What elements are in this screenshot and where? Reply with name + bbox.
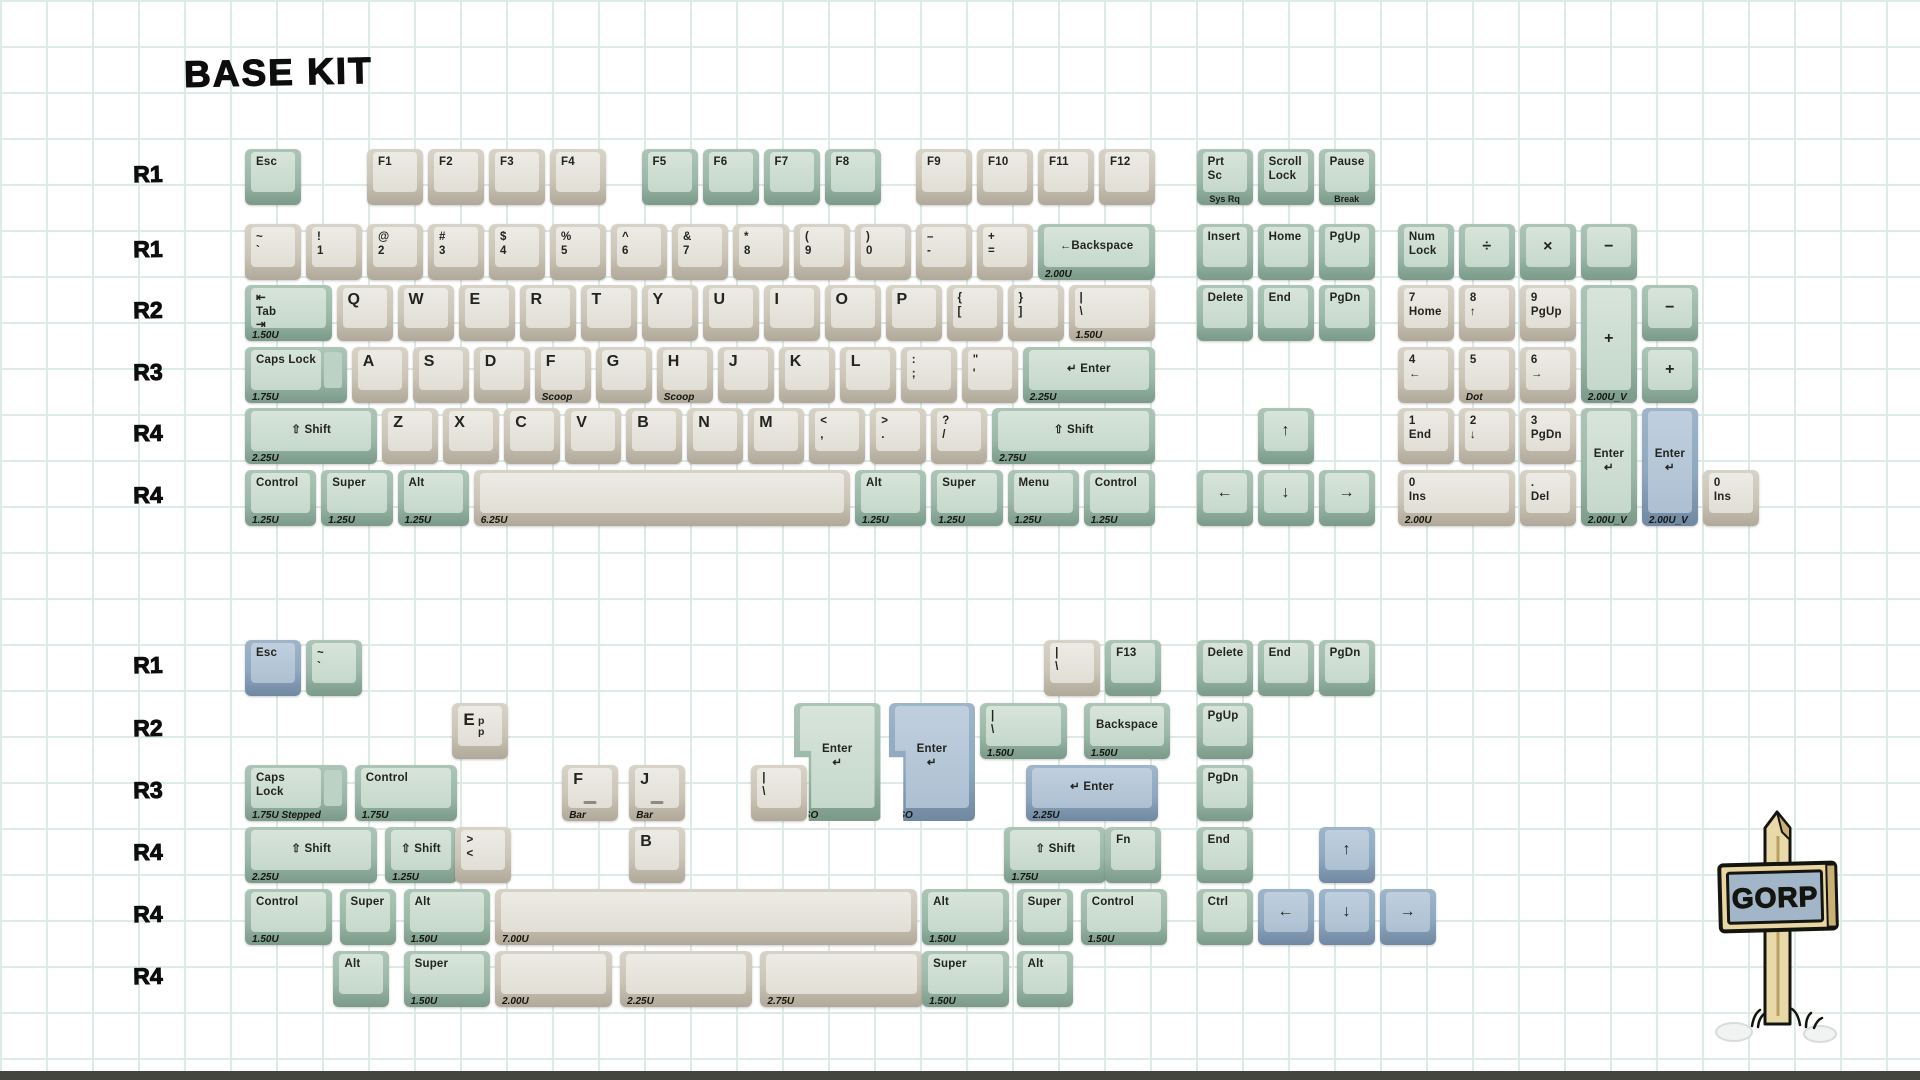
key-i: I: [764, 285, 820, 341]
row-label-bottom-r3-2: R3: [118, 776, 178, 804]
size-label: 1.50U: [411, 934, 438, 945]
row-label-top-r3-3: R3: [118, 358, 178, 386]
row-label-bottom-r2-1: R2: [118, 714, 178, 742]
key-2-2: @2: [367, 224, 423, 280]
size-label: 2.00U_V: [1588, 392, 1627, 403]
key-plus: +: [1642, 347, 1698, 403]
key-f3: F3: [489, 149, 545, 205]
key-semicolon: :;: [901, 347, 957, 403]
key-caps-lock: CapsLock1.75U Stepped: [245, 765, 347, 821]
size-label: 2.00U: [502, 996, 529, 1007]
key-p: P: [886, 285, 942, 341]
key-plus: +2.00U_V: [1581, 285, 1637, 403]
size-label: 2.75U: [767, 996, 794, 1007]
size-label: Dot: [1466, 392, 1483, 403]
key-w: W: [398, 285, 454, 341]
row-label-bottom-r1-0: R1: [118, 651, 178, 679]
key-slash: ?/: [931, 408, 987, 464]
key-7-7: &7: [672, 224, 728, 280]
size-label: 1.25U: [1015, 515, 1042, 526]
row-label-top-r2-2: R2: [118, 296, 178, 324]
size-label: 1.25U: [405, 515, 432, 526]
key-enter: Enter↵ISO: [889, 703, 976, 821]
key-g: G: [596, 347, 652, 403]
size-label: Scoop: [664, 392, 695, 403]
key-x: X: [443, 408, 499, 464]
key-v: V: [565, 408, 621, 464]
key-rbracket: }]: [1008, 285, 1064, 341]
key-z: Z: [382, 408, 438, 464]
key-super: Super1.25U: [321, 470, 392, 526]
key-j: JBar: [629, 765, 685, 821]
key-quote: "': [962, 347, 1018, 403]
key-super: Super1.50U: [922, 951, 1009, 1007]
key-right-arrow: →: [1380, 889, 1436, 945]
key-1-1: !1: [306, 224, 362, 280]
size-label: 6.25U: [481, 515, 508, 526]
key-n: N: [687, 408, 743, 464]
key-9-pgup: 9PgUp: [1520, 285, 1576, 341]
key-minus: −: [1581, 224, 1637, 280]
row-label-top-r4-5: R4: [118, 481, 178, 509]
key-1-end: 1End: [1398, 408, 1454, 464]
row-label-bottom-r4-5: R4: [118, 962, 178, 990]
key-f5: F5: [642, 149, 698, 205]
key-e-novelty: Epp: [452, 703, 508, 759]
front-legend: Sys Rq: [1197, 194, 1253, 204]
key-7-home: 7Home: [1398, 285, 1454, 341]
size-label: 2.75U: [999, 453, 1026, 464]
key-super: Super: [340, 889, 396, 945]
key-4-4: $4: [489, 224, 545, 280]
size-label: Bar: [636, 810, 653, 821]
size-label: 1.50U: [987, 748, 1014, 759]
homing-bar: [584, 801, 597, 804]
key-down-arrow: ↓: [1258, 470, 1314, 526]
key-control: Control1.25U: [245, 470, 316, 526]
key-pipe: |\1.50U: [1069, 285, 1156, 341]
key-divide: ÷: [1459, 224, 1515, 280]
key-control: Control1.75U: [355, 765, 457, 821]
bottom-edge-bar: [0, 1071, 1920, 1080]
key-spacebar: 2.75U: [760, 951, 923, 1007]
gorp-sign-illustration: GORP: [1712, 806, 1842, 1046]
key-spacebar: 7.00U: [495, 889, 917, 945]
size-label: 1.75U Stepped: [252, 810, 321, 821]
key-enter-enter: ↵ Enter2.25U: [1023, 347, 1155, 403]
key-spacebar: 2.00U: [495, 951, 612, 1007]
size-label: Bar: [569, 810, 586, 821]
key-f13: F13: [1105, 640, 1161, 696]
key-pipe: |\: [1044, 640, 1100, 696]
sign-text: GORP: [1731, 881, 1818, 914]
key-esc: Esc: [245, 640, 301, 696]
size-label: 1.75U: [1011, 872, 1038, 883]
key-down-arrow: ↓: [1319, 889, 1375, 945]
size-label: ISO: [896, 810, 913, 821]
size-label: 2.25U: [1033, 810, 1060, 821]
key-f10: F10: [977, 149, 1033, 205]
key-enter-enter: ↵ Enter2.25U: [1026, 765, 1158, 821]
key-super: Super1.50U: [404, 951, 491, 1007]
key-shift-shift: ⇧ Shift2.25U: [245, 408, 377, 464]
key-t: T: [581, 285, 637, 341]
key-control: Control1.25U: [1084, 470, 1155, 526]
size-label: 2.00U_V: [1649, 515, 1688, 526]
key-q: Q: [337, 285, 393, 341]
key-tilde: ~`: [245, 224, 301, 280]
key-2: 2↓: [1459, 408, 1515, 464]
key-alt: Alt: [1017, 951, 1073, 1007]
key-dash: –-: [916, 224, 972, 280]
size-label: 1.50U: [929, 996, 956, 1007]
size-label: 1.50U: [252, 934, 279, 945]
size-label: 1.25U: [392, 872, 419, 883]
key-pgup: PgUp: [1197, 703, 1253, 759]
key-up-arrow: ↑: [1258, 408, 1314, 464]
key-b: B: [626, 408, 682, 464]
size-label: 1.50U: [1076, 330, 1103, 341]
key-pipe: |\: [751, 765, 807, 821]
size-label: 1.50U: [929, 934, 956, 945]
key-5-5: %5: [550, 224, 606, 280]
key-alt: Alt: [333, 951, 389, 1007]
size-label: 1.50U: [252, 330, 279, 341]
key-period: >.: [870, 408, 926, 464]
key-delete: Delete: [1197, 640, 1253, 696]
size-label: 2.00U: [1405, 515, 1432, 526]
row-label-top-r4-4: R4: [118, 419, 178, 447]
key-left-arrow: ←: [1197, 470, 1253, 526]
key-comma: <,: [809, 408, 865, 464]
key-f7: F7: [764, 149, 820, 205]
key-6: 6→: [1520, 347, 1576, 403]
key-num-lock: NumLock: [1398, 224, 1454, 280]
key-alt: Alt1.25U: [855, 470, 926, 526]
key-end: End: [1197, 827, 1253, 883]
key-end: End: [1258, 640, 1314, 696]
row-label-bottom-r4-4: R4: [118, 900, 178, 928]
key-fn: Fn: [1105, 827, 1161, 883]
key-enter: Enter↵2.00U_V: [1642, 408, 1698, 526]
key-f1: F1: [367, 149, 423, 205]
key-insert: Insert: [1197, 224, 1253, 280]
keycap-kit-render: BASE KIT R1R1R2R3R4R4R1R2R3R4R4R4 EscF1F…: [0, 0, 1920, 1080]
size-label: 1.25U: [862, 515, 889, 526]
key-prt-sc: Prt ScSys Rq: [1197, 149, 1253, 205]
key-3-pgdn: 3PgDn: [1520, 408, 1576, 464]
key-a: A: [352, 347, 408, 403]
row-label-bottom-r4-3: R4: [118, 838, 178, 866]
key-lbracket: {[: [947, 285, 1003, 341]
key-s: S: [413, 347, 469, 403]
key-0-0: )0: [855, 224, 911, 280]
key-ctrl: Ctrl: [1197, 889, 1253, 945]
key-4: 4←: [1398, 347, 1454, 403]
key-9-9: (9: [794, 224, 850, 280]
key-multiply: ×: [1520, 224, 1576, 280]
key-caps-lock: Caps Lock1.75U: [245, 347, 347, 403]
key-pgdn: PgDn: [1197, 765, 1253, 821]
key-j: J: [718, 347, 774, 403]
row-label-top-r1-1: R1: [118, 235, 178, 263]
size-label: 2.25U: [627, 996, 654, 1007]
key-pause: PauseBreak: [1319, 149, 1375, 205]
size-label: 2.00U_V: [1588, 515, 1627, 526]
key-right-arrow: →: [1319, 470, 1375, 526]
key-b: B: [629, 827, 685, 883]
key-spacebar: 2.25U: [620, 951, 752, 1007]
size-label: 1.25U: [328, 515, 355, 526]
key-3-3: #3: [428, 224, 484, 280]
key-up-arrow: ↑: [1319, 827, 1375, 883]
key-h: HScoop: [657, 347, 713, 403]
key-delete: Delete: [1197, 285, 1253, 341]
size-label: 2.00U: [1045, 269, 1072, 280]
size-label: 1.25U: [252, 515, 279, 526]
key-f: FScoop: [535, 347, 591, 403]
key-minus: −: [1642, 285, 1698, 341]
row-label-top-r1-0: R1: [118, 160, 178, 188]
key-l: L: [840, 347, 896, 403]
key-6-6: ^6: [611, 224, 667, 280]
size-label: 2.25U: [252, 872, 279, 883]
key-super: Super1.25U: [931, 470, 1002, 526]
key-left-arrow: ←: [1258, 889, 1314, 945]
key-u: U: [703, 285, 759, 341]
key-enter: Enter↵2.00U_V: [1581, 408, 1637, 526]
key-d: D: [474, 347, 530, 403]
key-super: Super: [1017, 889, 1073, 945]
key-f8: F8: [825, 149, 881, 205]
key-backspace: Backspace1.50U: [1084, 703, 1171, 759]
front-legend: Break: [1319, 194, 1375, 204]
key-plus: +=: [977, 224, 1033, 280]
key-period: ><: [455, 827, 511, 883]
key-r: R: [520, 285, 576, 341]
key-pgup: PgUp: [1319, 224, 1375, 280]
key-alt: Alt1.25U: [398, 470, 469, 526]
key-8-8: *8: [733, 224, 789, 280]
key-k: K: [779, 347, 835, 403]
key-y: Y: [642, 285, 698, 341]
key-0-ins: 0Ins: [1703, 470, 1759, 526]
key-numpad-dot-del: .Del: [1520, 470, 1576, 526]
key-o: O: [825, 285, 881, 341]
key-0-ins: 0Ins2.00U: [1398, 470, 1515, 526]
key-alt: Alt1.50U: [404, 889, 491, 945]
homing-bar: [651, 801, 664, 804]
size-label: 2.25U: [252, 453, 279, 464]
key-f11: F11: [1038, 149, 1094, 205]
key-alt: Alt1.50U: [922, 889, 1009, 945]
key-scroll-lock: ScrollLock: [1258, 149, 1314, 205]
key-menu: Menu1.25U: [1008, 470, 1079, 526]
size-label: Scoop: [542, 392, 573, 403]
key-f4: F4: [550, 149, 606, 205]
key-8: 8↑: [1459, 285, 1515, 341]
key-shift-shift: ⇧ Shift2.25U: [245, 827, 377, 883]
size-label: 1.50U: [1088, 934, 1115, 945]
size-label: 1.50U: [411, 996, 438, 1007]
key-pgdn: PgDn: [1319, 640, 1375, 696]
key-shift-shift: ⇧ Shift1.25U: [385, 827, 456, 883]
size-label: 1.75U: [252, 392, 279, 403]
key-control: Control1.50U: [245, 889, 332, 945]
key-c: C: [504, 408, 560, 464]
key-spacebar: 6.25U: [474, 470, 850, 526]
key-5: 5Dot: [1459, 347, 1515, 403]
size-label: 1.25U: [938, 515, 965, 526]
size-label: 1.75U: [362, 810, 389, 821]
size-label: 1.25U: [1091, 515, 1118, 526]
size-label: 1.50U: [1091, 748, 1118, 759]
key-esc: Esc: [245, 149, 301, 205]
key-f2: F2: [428, 149, 484, 205]
key-m: M: [748, 408, 804, 464]
size-label: 2.25U: [1030, 392, 1057, 403]
size-label: 7.00U: [502, 934, 529, 945]
key-control: Control1.50U: [1081, 889, 1168, 945]
key-shift-shift: ⇧ Shift1.75U: [1004, 827, 1106, 883]
key-pipe: |\1.50U: [980, 703, 1067, 759]
key-e: E: [459, 285, 515, 341]
key-f: FBar: [562, 765, 618, 821]
page-title: BASE KIT: [184, 50, 374, 96]
key-home: Home: [1258, 224, 1314, 280]
key-f6: F6: [703, 149, 759, 205]
key-f12: F12: [1099, 149, 1155, 205]
key-left-arrow-backspace: ←Backspace2.00U: [1038, 224, 1155, 280]
key-f9: F9: [916, 149, 972, 205]
key-pgdn: PgDn: [1319, 285, 1375, 341]
key-tilde: ~`: [306, 640, 362, 696]
key-end: End: [1258, 285, 1314, 341]
key-shift-shift: ⇧ Shift2.75U: [992, 408, 1155, 464]
key-tab-tab: ⇤Tab⇥1.50U: [245, 285, 332, 341]
